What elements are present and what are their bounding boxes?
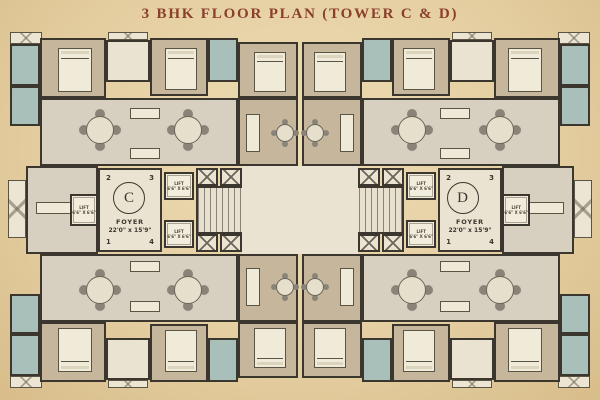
lift: LIFT 6'6" X 6'6" [406, 220, 436, 248]
bathroom [208, 338, 238, 382]
bedroom [494, 322, 560, 382]
tower-letter-badge: D [447, 182, 479, 214]
page-title: 3 BHK FLOOR PLAN (TOWER C & D) [0, 6, 600, 23]
lift-shaft [220, 234, 242, 252]
tower-d: LIFT 6'6" X 6'6" 3 2 4 1 D FOYER 22'0" x… [300, 32, 592, 388]
bathroom [10, 86, 40, 126]
foyer-size: 22'0" x 15'9" [440, 227, 500, 234]
unit-number: 4 [489, 238, 494, 246]
bathroom [560, 86, 590, 126]
sofa [130, 301, 160, 312]
dining-table [398, 276, 426, 304]
dining-table [86, 276, 114, 304]
dining-table [86, 116, 114, 144]
bed [403, 48, 435, 90]
balcony [558, 376, 590, 388]
sofa [528, 202, 564, 214]
lift-size: 6'6" X 6'6" [167, 234, 191, 239]
sofa [36, 202, 72, 214]
bathroom [208, 38, 238, 82]
bedroom [392, 38, 450, 96]
foyer-size: 22'0" x 15'9" [100, 227, 160, 234]
round-table [276, 124, 294, 142]
bedroom [392, 324, 450, 382]
center-lobby [242, 166, 300, 254]
bed [508, 48, 542, 92]
foyer-label: FOYER [100, 218, 160, 226]
bed [254, 328, 286, 368]
bedroom [150, 38, 208, 96]
sofa [440, 148, 470, 159]
sofa [130, 108, 160, 119]
lift-shaft [382, 234, 404, 252]
bedroom [150, 324, 208, 382]
bedroom [494, 38, 560, 98]
bed [403, 330, 435, 372]
lift-size: 6'6" X 6'6" [167, 186, 191, 191]
sofa [130, 148, 160, 159]
sofa [130, 261, 160, 272]
bathroom [560, 294, 590, 334]
tower-c-core: LIFT 6'6" X 6'6" 2 3 1 4 C FOYER 22'0" x… [8, 166, 300, 254]
bed [58, 48, 92, 92]
bed [314, 52, 346, 92]
bathroom [10, 44, 40, 86]
bedroom [302, 42, 362, 98]
bathroom [560, 44, 590, 86]
dining-table [486, 276, 514, 304]
tower-letter-badge: C [113, 182, 145, 214]
unit-number: 3 [149, 174, 154, 182]
living-dining-area [362, 98, 560, 166]
bathroom [10, 334, 40, 376]
lift-shaft [196, 234, 218, 252]
sofa [440, 108, 470, 119]
balcony [558, 32, 590, 44]
round-table [276, 278, 294, 296]
sofa [246, 114, 260, 152]
tower-d-core: LIFT 6'6" X 6'6" 3 2 4 1 D FOYER 22'0" x… [300, 166, 592, 254]
lift-size: 6'6" X 6'6" [72, 210, 96, 215]
kitchen [106, 40, 150, 82]
lift-shaft [358, 168, 380, 186]
lift-size: 6'6" X 6'6" [504, 210, 528, 215]
tower-c-lower-apartments [8, 254, 300, 388]
bedroom [302, 322, 362, 378]
bed [165, 330, 197, 372]
balcony [452, 380, 492, 388]
sofa [440, 301, 470, 312]
foyer: 2 3 1 4 C FOYER 22'0" x 15'9" [98, 168, 162, 252]
lift-shaft [358, 234, 380, 252]
foyer: 3 2 4 1 D FOYER 22'0" x 15'9" [438, 168, 502, 252]
round-table [306, 124, 324, 142]
bedroom [40, 38, 106, 98]
balcony [108, 32, 148, 40]
unit-number: 3 [489, 174, 494, 182]
sofa [340, 114, 354, 152]
lift: LIFT 6'6" X 6'6" [70, 194, 98, 226]
family-lounge [302, 254, 362, 322]
dining-table [174, 276, 202, 304]
bathroom [10, 294, 40, 334]
dining-table [486, 116, 514, 144]
bathroom [560, 334, 590, 376]
balcony [574, 180, 592, 238]
kitchen [450, 40, 494, 82]
dining-table [174, 116, 202, 144]
round-table [306, 278, 324, 296]
bed [58, 328, 92, 372]
balcony [8, 180, 26, 238]
floor-plan: LIFT 6'6" X 6'6" 2 3 1 4 C FOYER 22'0" x… [8, 32, 592, 388]
bed [254, 52, 286, 92]
lift-shaft [220, 168, 242, 186]
unit-number: 4 [149, 238, 154, 246]
sofa [440, 261, 470, 272]
living-dining-area [362, 254, 560, 322]
balcony [10, 376, 42, 388]
sofa [340, 268, 354, 306]
bathroom [362, 38, 392, 82]
tower-d-lower-apartments [300, 254, 592, 388]
unit-number: 1 [106, 238, 111, 246]
sofa [246, 268, 260, 306]
bed [165, 48, 197, 90]
unit-number: 2 [446, 174, 451, 182]
living-dining-area [40, 98, 238, 166]
tower-d-upper-apartments [300, 32, 592, 166]
bathroom [362, 338, 392, 382]
lift-shaft [196, 168, 218, 186]
foyer-label: FOYER [440, 218, 500, 226]
unit-number: 2 [106, 174, 111, 182]
kitchen [450, 338, 494, 380]
family-lounge [238, 254, 298, 322]
center-lobby [300, 166, 358, 254]
family-lounge [238, 98, 298, 166]
balcony [452, 32, 492, 40]
lift-size: 6'6" X 6'6" [409, 186, 433, 191]
bedroom [40, 322, 106, 382]
tower-c: LIFT 6'6" X 6'6" 2 3 1 4 C FOYER 22'0" x… [8, 32, 300, 388]
living-dining-area [40, 254, 238, 322]
lift-size: 6'6" X 6'6" [409, 234, 433, 239]
lift: LIFT 6'6" X 6'6" [164, 220, 194, 248]
lift: LIFT 6'6" X 6'6" [406, 172, 436, 200]
unit-number: 1 [446, 238, 451, 246]
bedroom [238, 42, 298, 98]
balcony [108, 380, 148, 388]
lift-shaft [382, 168, 404, 186]
bed [508, 328, 542, 372]
bedroom [238, 322, 298, 378]
family-lounge [302, 98, 362, 166]
dining-table [398, 116, 426, 144]
lift: LIFT 6'6" X 6'6" [164, 172, 194, 200]
balcony [10, 32, 42, 44]
kitchen [106, 338, 150, 380]
bed [314, 328, 346, 368]
tower-c-upper-apartments [8, 32, 300, 166]
lift: LIFT 6'6" X 6'6" [502, 194, 530, 226]
